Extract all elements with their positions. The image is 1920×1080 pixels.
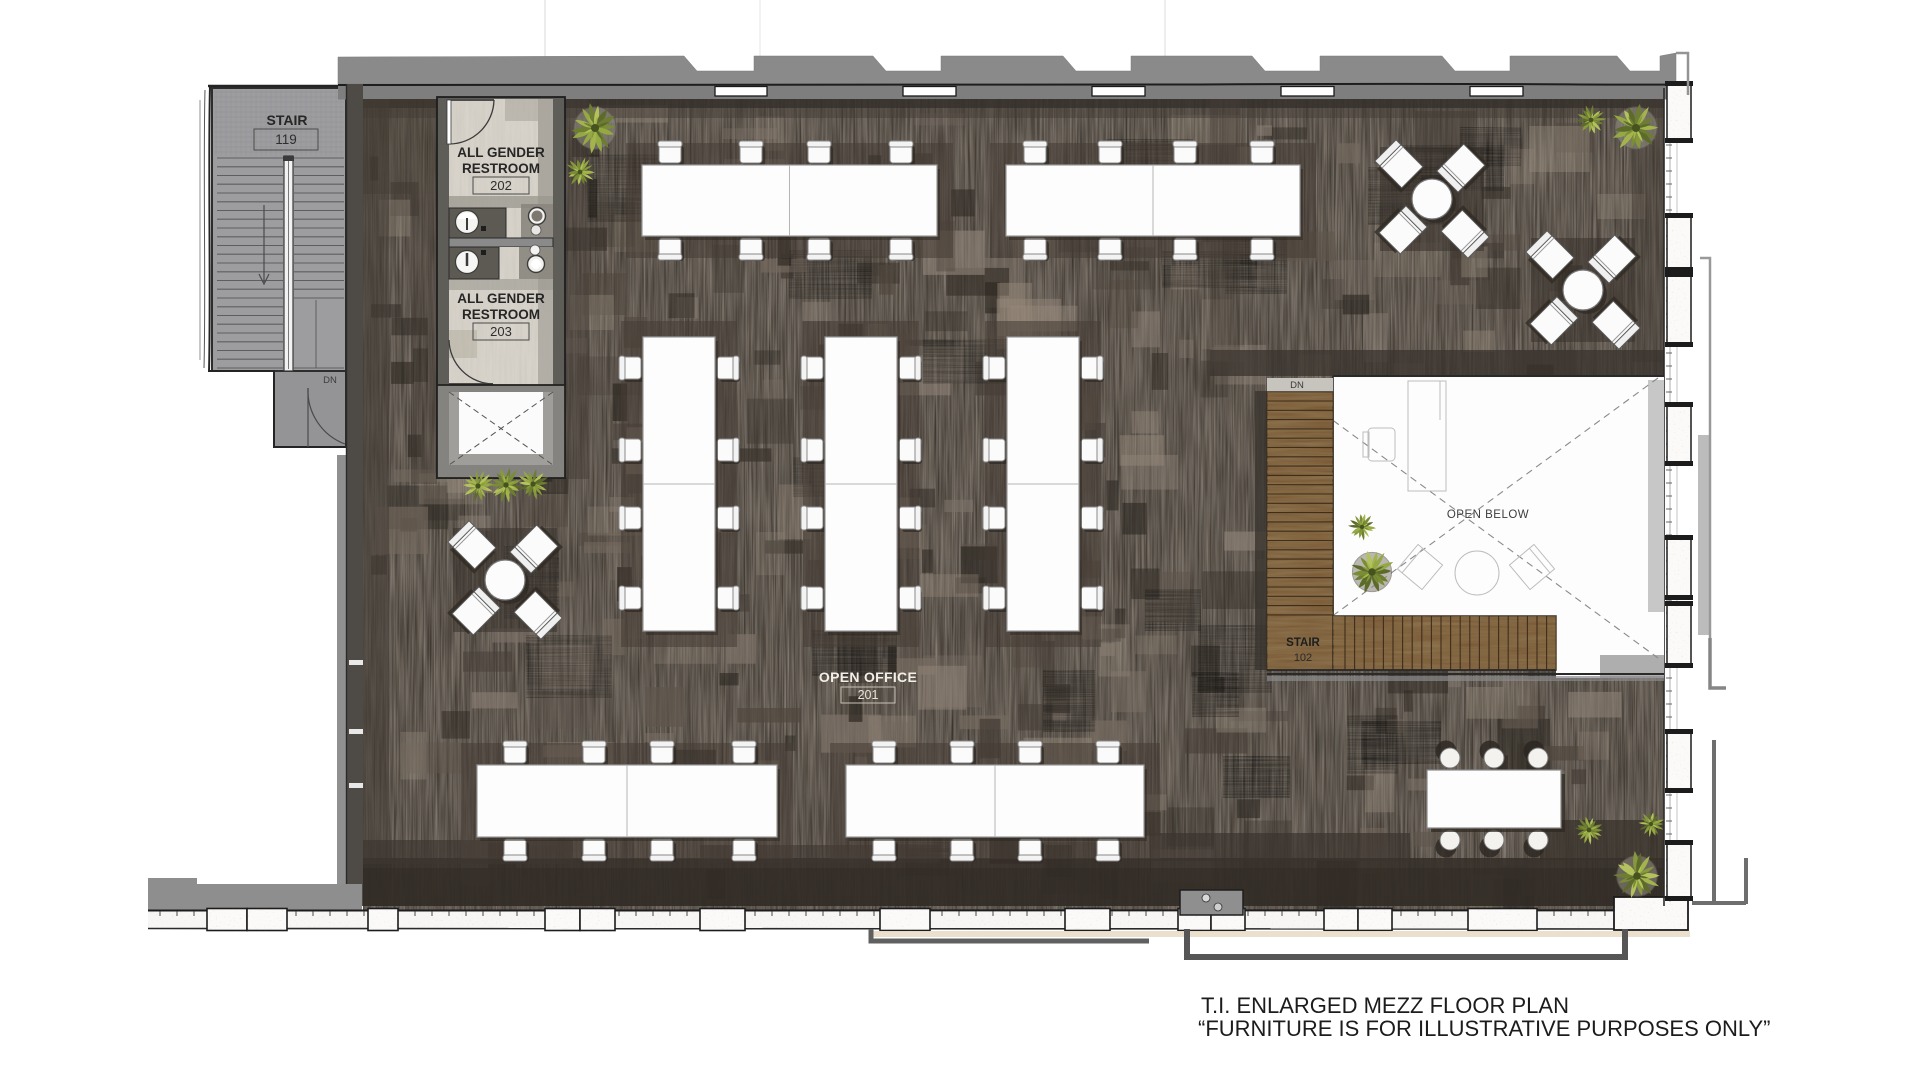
svg-text:102: 102 bbox=[1294, 652, 1312, 664]
svg-text:T.I. ENLARGED MEZZ FLOOR PLAN: T.I. ENLARGED MEZZ FLOOR PLAN bbox=[1201, 993, 1569, 1018]
svg-text:203: 203 bbox=[490, 324, 512, 339]
svg-text:ALL GENDER: ALL GENDER bbox=[457, 145, 545, 160]
svg-text:STAIR: STAIR bbox=[1286, 637, 1320, 649]
svg-text:DN: DN bbox=[323, 375, 337, 386]
svg-text:OPEN OFFICE: OPEN OFFICE bbox=[819, 669, 917, 685]
svg-text:201: 201 bbox=[858, 688, 879, 702]
svg-text:RESTROOM: RESTROOM bbox=[462, 161, 540, 176]
svg-text:STAIR: STAIR bbox=[267, 112, 308, 128]
svg-text:DN: DN bbox=[1290, 380, 1304, 391]
svg-text:119: 119 bbox=[275, 132, 297, 147]
svg-text:RESTROOM: RESTROOM bbox=[462, 307, 540, 322]
svg-text:OPEN BELOW: OPEN BELOW bbox=[1447, 509, 1529, 521]
svg-text:“FURNITURE IS FOR ILLUSTRATIVE: “FURNITURE IS FOR ILLUSTRATIVE PURPOSES … bbox=[1198, 1016, 1770, 1041]
svg-text:ALL GENDER: ALL GENDER bbox=[457, 291, 545, 306]
svg-text:202: 202 bbox=[490, 178, 512, 193]
